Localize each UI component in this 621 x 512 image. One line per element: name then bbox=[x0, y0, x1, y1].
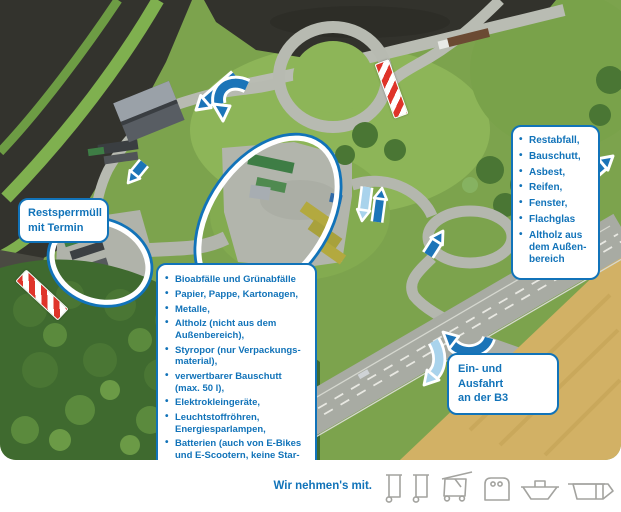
list-item: Fenster, bbox=[516, 198, 594, 210]
front-load-container-icon bbox=[481, 472, 513, 504]
entrance-label: Ein- und Ausfahrt an der B3 bbox=[458, 362, 548, 406]
container-icons bbox=[384, 468, 617, 504]
footer: Wir nehmen's mit. bbox=[0, 460, 621, 512]
list-item: Bauschutt, bbox=[516, 151, 594, 163]
wheelie-bin-icon bbox=[384, 468, 404, 504]
list-item: Leuchtstoffröhren, Energiesparlampen, bbox=[162, 412, 310, 435]
list-item: verwertbarer Bauschutt (max. 50 l), bbox=[162, 371, 310, 394]
footer-label: Wir nehmen's mit. bbox=[274, 480, 372, 492]
list-item: Altholz aus dem Außen- bereich bbox=[516, 230, 594, 267]
list-item: Flachglas bbox=[516, 214, 594, 226]
list-item: Papier, Pappe, Kartonagen, bbox=[162, 289, 310, 301]
list-item: Reifen, bbox=[516, 182, 594, 194]
infographic-recycling-center: Restsperrmüll mit Termin Bioabfälle und … bbox=[0, 0, 621, 512]
restricted-items-box: Restabfall,Bauschutt,Asbest,Reifen,Fenst… bbox=[511, 125, 600, 280]
restricted-items-list: Restabfall,Bauschutt,Asbest,Reifen,Fenst… bbox=[516, 135, 594, 266]
list-item: Restabfall, bbox=[516, 135, 594, 147]
list-item: Bioabfälle und Grünabfälle bbox=[162, 274, 310, 286]
roll-off-container-icon bbox=[567, 476, 615, 504]
restsperrmuell-label-box: Restsperrmüll mit Termin bbox=[18, 198, 109, 243]
wheelie-bin-icon bbox=[411, 468, 431, 504]
skip-container-icon bbox=[520, 476, 560, 504]
entrance-label-box: Ein- und Ausfahrt an der B3 bbox=[447, 353, 559, 415]
restsperrmuell-label: Restsperrmüll mit Termin bbox=[28, 206, 99, 235]
list-item: Metalle, bbox=[162, 304, 310, 316]
list-item: Altholz (nicht aus dem Außenbereich), bbox=[162, 318, 310, 341]
open-lid-container-icon bbox=[438, 468, 474, 504]
list-item: Styropor (nur Verpackungs- material), bbox=[162, 345, 310, 368]
list-item: Elektrokleingeräte, bbox=[162, 397, 310, 409]
list-item: Asbest, bbox=[516, 167, 594, 179]
